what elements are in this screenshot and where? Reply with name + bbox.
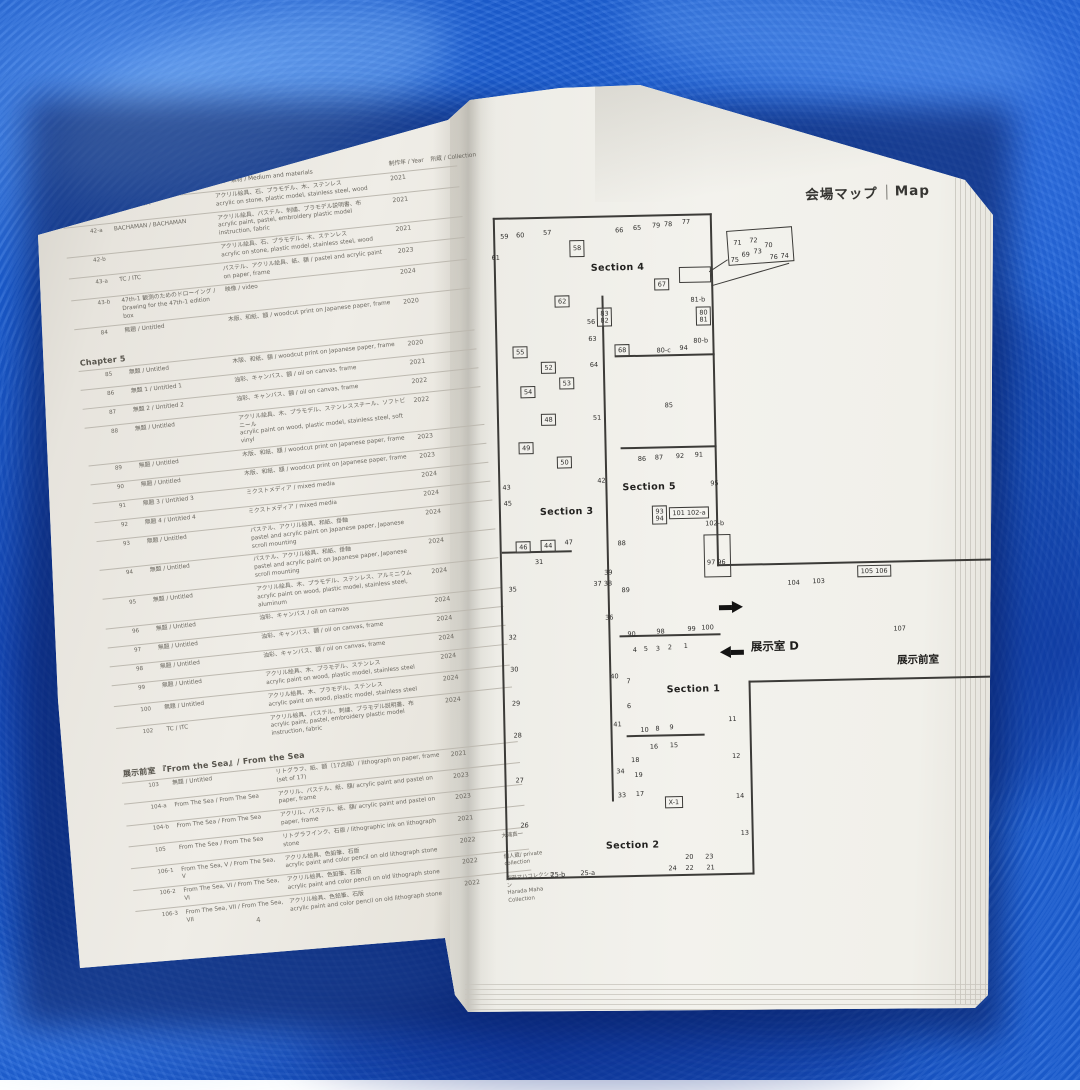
right-arrow-icon (719, 601, 743, 614)
exhibit-number-label: 68 (614, 344, 630, 356)
exhibit-number-label: 83 82 (597, 307, 613, 327)
artwork-list: 技法・素材 / Medium and materials 制作年 / Year … (60, 152, 535, 946)
exhibit-number-label: 97 96 (707, 559, 726, 567)
exhibit-number-label: 5 (644, 646, 648, 653)
exhibit-number-label: 54 (520, 386, 536, 398)
exhibit-number-label: 48 (541, 414, 557, 426)
exhibit-number-label: 19 (634, 772, 642, 779)
exhibit-number-label: 14 (736, 793, 744, 800)
exhibit-number-label: 45 (504, 501, 512, 508)
exhibit-number-label: 55 (512, 346, 528, 358)
map-wall (493, 213, 712, 219)
exhibit-number-label: 13 (741, 830, 749, 837)
exhibit-number-label: 73 (753, 248, 761, 255)
exhibit-number-label: 102-b (705, 520, 724, 528)
room-annotation: 展示室 D (751, 638, 799, 655)
exhibit-number-label: 77 (682, 219, 690, 226)
exhibit-number-label: 27 (515, 777, 523, 784)
exhibit-number-label: 64 (590, 362, 598, 369)
exhibit-number-label: 104 (787, 580, 800, 587)
exhibit-number-label: 71 (733, 240, 741, 247)
exhibit-number-label: 44 (541, 540, 557, 552)
exhibit-number-label: 3 (656, 645, 660, 652)
exhibit-number-label: X-1 (665, 796, 683, 809)
exhibit-number-label: 25-a (580, 870, 595, 877)
exhibit-number-label: 46 (516, 541, 532, 553)
exhibit-number-label: 66 (615, 227, 623, 234)
exhibit-number-label: 53 (559, 377, 575, 389)
map-title: 会場マップ Map (805, 181, 930, 204)
map-wall (748, 676, 993, 683)
exhibit-number-label: 25-b (550, 872, 565, 879)
exhibit-number-label: 58 (569, 240, 585, 257)
open-booklet: 技法・素材 / Medium and materials 制作年 / Year … (35, 82, 995, 1017)
exhibit-number-label: 9 (669, 724, 673, 731)
exhibit-number-label: 80-c (657, 347, 671, 354)
exhibit-number-label: 103 (812, 578, 825, 585)
exhibit-number-label: 86 (638, 456, 646, 463)
map-wall (717, 559, 991, 566)
map-room-outline (679, 266, 711, 283)
map-wall (711, 263, 789, 287)
exhibit-number-label: 62 (554, 295, 570, 307)
exhibit-number-label: 49 (518, 442, 534, 454)
section-label: Section 3 (540, 506, 594, 518)
exhibit-number-label: 63 (588, 336, 596, 343)
exhibit-number-label: 37 38 (593, 580, 612, 588)
exhibit-number-label: 98 (656, 628, 664, 635)
exhibit-number-label: 100 (701, 624, 714, 631)
exhibit-number-label: 78 (664, 221, 672, 228)
exhibit-number-label: 60 (516, 232, 524, 239)
exhibit-number-label: 26 (520, 822, 528, 829)
map-title-en: Map (895, 183, 931, 200)
exhibit-number-label: 6 (627, 703, 631, 710)
exhibit-number-label: 75 (731, 257, 739, 264)
exhibit-number-label: 41 (613, 721, 621, 728)
exhibit-number-label: 18 (631, 757, 639, 764)
exhibit-number-label: 52 (541, 362, 557, 374)
exhibit-number-label: 81-b (690, 296, 705, 303)
exhibit-number-label: 35 (508, 586, 516, 593)
exhibit-number-label: 43 (502, 485, 510, 492)
exhibit-number-label: 47 (565, 539, 573, 546)
exhibit-number-label: 8 (655, 726, 659, 733)
exhibit-number-label: 4 (633, 647, 637, 654)
exhibit-number-label: 11 (728, 716, 736, 723)
exhibit-number-label: 20 (685, 854, 693, 861)
map-wall (507, 873, 755, 880)
exhibit-number-label: 92 (676, 453, 684, 460)
exhibit-number-label: 57 (543, 230, 551, 237)
exhibit-number-label: 80-b (693, 337, 708, 344)
map-room-outline (703, 534, 731, 578)
exhibit-number-label: 90 (627, 631, 635, 638)
map-wall (627, 734, 705, 737)
exhibit-number-label: 28 (514, 732, 522, 739)
exhibit-number-label: 31 (535, 559, 543, 566)
section-label: Section 1 (667, 683, 721, 695)
section-label: Section 5 (622, 481, 676, 493)
exhibit-number-label: 17 (636, 791, 644, 798)
exhibit-number-label: 105 106 (857, 565, 891, 578)
map-wall (502, 550, 572, 553)
exhibit-number-label: 94 (679, 345, 687, 352)
exhibit-number-label: 32 (508, 634, 516, 641)
exhibit-number-label: 69 (742, 252, 750, 259)
exhibit-number-label: 74 (781, 253, 789, 260)
exhibit-number-label: 50 (557, 456, 573, 468)
map-wall (748, 681, 754, 875)
exhibit-number-label: 22 (685, 865, 693, 872)
exhibit-number-label: 85 (665, 402, 673, 409)
exhibit-number-label: 76 (770, 254, 778, 261)
exhibit-number-label: 2 (668, 644, 672, 651)
exhibit-number-label: 91 (695, 452, 703, 459)
section-label: Section 2 (606, 840, 660, 852)
exhibit-number-label: 93 94 (652, 505, 668, 525)
exhibit-number-label: 30 (510, 666, 518, 673)
exhibit-number-label: 23 (705, 853, 713, 860)
exhibit-number-label: 36 (605, 614, 613, 621)
exhibit-number-label: 67 (654, 278, 670, 290)
exhibit-number-label: 42 (597, 478, 605, 485)
exhibit-number-label: 72 (749, 237, 757, 244)
exhibit-number-label: 24 (668, 865, 676, 872)
exhibit-number-label: 56 (587, 319, 595, 326)
exhibit-number-label: 40 (610, 673, 618, 680)
list-rows: 41NADA / NADAアクリル絵具、石、プラモデル、木、ステンレスacryl… (61, 165, 535, 946)
exhibit-number-label: 95 (710, 480, 718, 487)
map-title-jp: 会場マップ (805, 182, 878, 204)
exhibit-number-label: 79 (652, 222, 660, 229)
exhibit-number-label: 16 (650, 744, 658, 751)
left-arrow-icon (720, 646, 744, 659)
exhibit-number-label: 89 (622, 587, 630, 594)
exhibit-number-label: 88 (618, 540, 626, 547)
venue-map-page: 会場マップ Map 596057616665797877717270736975… (487, 171, 1009, 1011)
exhibit-number-label: 101 102-a (669, 506, 709, 519)
exhibit-number-label: 107 (893, 625, 906, 632)
exhibit-number-label: 39 (604, 569, 612, 576)
exhibit-number-label: 12 (732, 753, 740, 760)
exhibit-number-label: 61 (492, 255, 500, 262)
exhibit-number-label: 7 (626, 678, 630, 685)
exhibit-number-label: 15 (670, 742, 678, 749)
exhibit-number-label: 1 (684, 643, 688, 650)
section-label: Section 4 (591, 262, 645, 274)
exhibit-number-label: 70 (764, 242, 772, 249)
exhibit-number-label: 10 (640, 727, 648, 734)
exhibit-number-label: 65 (633, 225, 641, 232)
title-divider (886, 184, 887, 199)
room-annotation: 展示前室 (897, 652, 939, 668)
exhibit-number-label: 34 (616, 768, 624, 775)
exhibit-number-label: 87 (655, 454, 663, 461)
map-wall (601, 296, 613, 802)
map-wall (621, 445, 717, 449)
exhibit-number-label: 99 (687, 626, 695, 633)
venue-floor-plan: 5960576166657978777172707369757674586781… (490, 201, 1006, 893)
exhibit-number-label: 33 (618, 792, 626, 799)
exhibit-number-label: 80 81 (696, 306, 712, 326)
exhibit-number-label: 59 (500, 234, 508, 241)
exhibit-number-label: 29 (512, 700, 520, 707)
exhibit-number-label: 21 (706, 864, 714, 871)
exhibit-number-label: 51 (593, 415, 601, 422)
